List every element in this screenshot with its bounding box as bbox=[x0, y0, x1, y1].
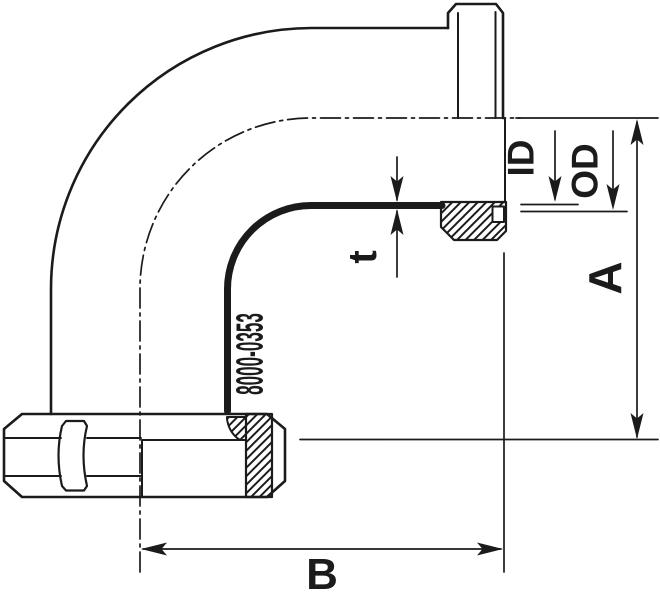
thread-relief-groove bbox=[493, 207, 505, 223]
label-outer-diameter: OD bbox=[565, 143, 606, 199]
part-number: 8000-0353 bbox=[229, 313, 272, 395]
label-dimension-a: A bbox=[579, 261, 631, 294]
label-dimension-b: B bbox=[306, 550, 338, 599]
label-wall-thickness: t bbox=[341, 250, 385, 263]
nut-wall-section-hatch bbox=[246, 414, 272, 497]
technical-drawing: ID OD A B t 8000-0353 bbox=[0, 0, 660, 603]
drawing-sheet: ID OD A B t 8000-0353 bbox=[0, 0, 660, 603]
sheet-background bbox=[0, 0, 660, 603]
label-inner-diameter: ID bbox=[501, 140, 542, 177]
